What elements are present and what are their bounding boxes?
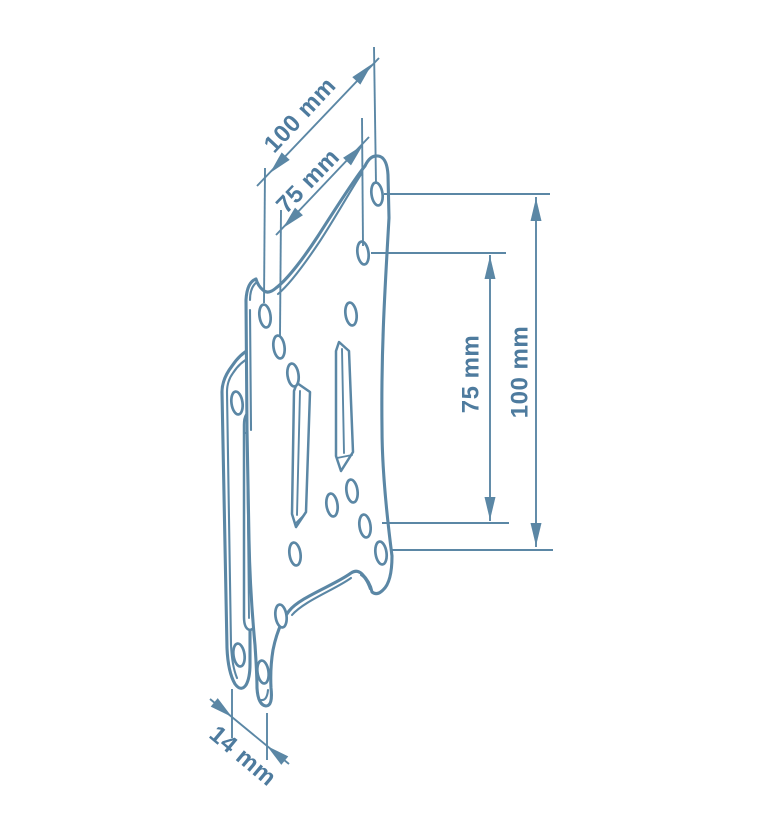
extension-line <box>264 168 265 303</box>
dimension-label: 100 mm <box>506 326 533 418</box>
center-slot-left <box>292 383 310 527</box>
dimension-label: 100 mm <box>259 72 342 158</box>
dimension-label: 14 mm <box>204 721 282 792</box>
arrowhead <box>531 198 542 221</box>
arrowhead <box>531 523 542 546</box>
extension-line <box>362 118 363 246</box>
arrowhead <box>485 256 496 279</box>
bracket-technical-drawing: 100 mm 75 mm 75 mm 100 mm <box>0 0 778 839</box>
dimension-label: 75 mm <box>457 335 484 414</box>
vesa-plate <box>246 156 392 706</box>
arrowhead <box>485 497 496 520</box>
dimension-14mm-depth: 14 mm <box>204 689 289 792</box>
vesa-plate-outline <box>246 156 392 706</box>
dimension-75mm-vertical: 75 mm <box>371 253 509 523</box>
drawing-canvas: 100 mm 75 mm 75 mm 100 mm <box>0 0 778 839</box>
